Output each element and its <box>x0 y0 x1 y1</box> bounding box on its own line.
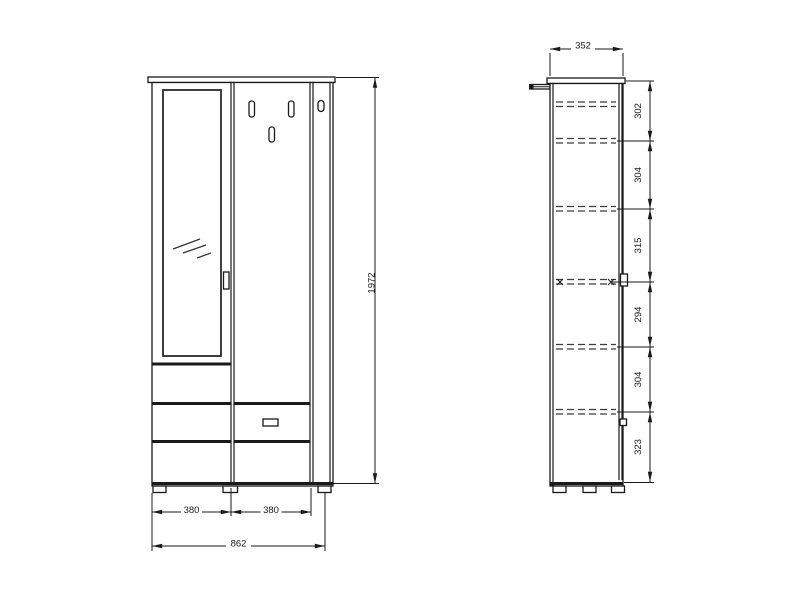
dim-label-shelf-spacing: 315 <box>633 238 644 254</box>
door-handle <box>224 272 230 289</box>
corner-mark <box>551 483 555 486</box>
dim-total-width: 862 <box>152 493 325 551</box>
cabinet-foot <box>153 486 166 493</box>
dim-label-shelf-spacing: 323 <box>633 439 644 455</box>
dim-right-section-width: 380 <box>231 488 311 516</box>
wall-bracket-icon <box>529 84 550 90</box>
dim-total-height: 1972 <box>333 78 379 484</box>
coat-hook-icon <box>289 101 295 117</box>
side-panel-hook-icon <box>318 101 324 112</box>
hinge-marker <box>620 419 627 426</box>
technical-drawing-page: 1972 380 380 862 <box>0 0 800 600</box>
dim-label-total-height: 1972 <box>367 272 378 293</box>
dim-label-right-section: 380 <box>263 505 279 516</box>
dim-label-shelf-spacing: 304 <box>633 167 644 183</box>
dim-label-depth: 352 <box>575 41 591 52</box>
side-body <box>550 84 623 487</box>
dim-label-shelf-spacing: 302 <box>633 103 644 119</box>
drawer-handle <box>263 419 278 426</box>
side-door-handle <box>621 274 628 286</box>
side-top-board <box>547 78 625 84</box>
dim-depth: 352 <box>550 40 623 76</box>
cabinet-foot <box>223 486 238 493</box>
front-view <box>148 77 335 493</box>
mirror-door <box>163 90 221 356</box>
wardrobe-drawing: 1972 380 380 862 <box>0 0 800 600</box>
dim-label-left-section: 380 <box>184 505 200 516</box>
dim-label-shelf-spacing: 304 <box>633 372 644 388</box>
cabinet-foot <box>318 486 331 493</box>
dim-label-total-width: 862 <box>231 539 247 550</box>
coat-hook-icon <box>269 127 275 142</box>
side-foot <box>553 486 566 493</box>
side-view <box>529 78 628 493</box>
coat-hook-icon <box>249 101 255 117</box>
side-foot <box>612 486 625 493</box>
top-board <box>148 77 335 83</box>
side-foot <box>583 486 596 493</box>
dim-label-shelf-spacing: 294 <box>633 307 644 323</box>
